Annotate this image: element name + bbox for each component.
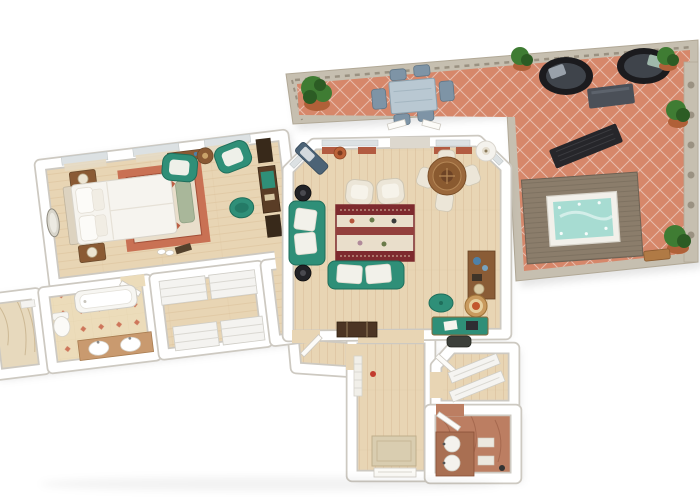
living-window bbox=[322, 140, 378, 146]
curtain bbox=[456, 147, 472, 154]
bookcase bbox=[256, 138, 274, 164]
nightstand bbox=[78, 243, 106, 263]
wardrobe-unit bbox=[220, 316, 265, 345]
sofa-cushion bbox=[294, 232, 317, 255]
papers bbox=[444, 320, 458, 331]
entry-hall bbox=[346, 338, 430, 477]
terrace-door-threshold bbox=[390, 137, 430, 148]
ornate-area-rug bbox=[336, 205, 414, 261]
garden-bench bbox=[644, 249, 671, 262]
orange-planter bbox=[334, 147, 346, 159]
cream-armchair bbox=[376, 178, 405, 206]
floor-plan-canvas bbox=[0, 0, 700, 500]
double-bed bbox=[63, 173, 178, 246]
teal-desk bbox=[432, 317, 488, 335]
closet-2 bbox=[430, 348, 514, 406]
outdoor-chair bbox=[413, 64, 430, 76]
teal-sofa-horizontal bbox=[328, 261, 404, 289]
towel-shelf bbox=[478, 438, 494, 447]
floor-plan-image bbox=[0, 0, 700, 500]
outdoor-chair bbox=[439, 80, 455, 101]
round-daybed bbox=[539, 57, 593, 95]
laptop bbox=[466, 321, 478, 330]
outdoor-chair bbox=[371, 88, 387, 109]
wardrobe-unit bbox=[173, 322, 220, 351]
teal-pouf bbox=[429, 294, 453, 312]
cream-armchair bbox=[345, 179, 374, 207]
wicker-chair bbox=[465, 295, 487, 317]
pillow bbox=[91, 189, 104, 211]
walk-in-closet bbox=[155, 266, 267, 354]
wall-shelf bbox=[20, 300, 35, 309]
sofa-cushion bbox=[365, 264, 391, 284]
sink bbox=[444, 455, 460, 471]
bookcase bbox=[265, 214, 283, 238]
sofa-cushion bbox=[336, 264, 362, 284]
outdoor-chair bbox=[390, 69, 407, 81]
bathroom-main bbox=[43, 274, 156, 368]
teal-armchair bbox=[161, 153, 198, 183]
black-side-table bbox=[295, 265, 311, 281]
hot-tub bbox=[521, 172, 643, 264]
living-room bbox=[288, 119, 506, 356]
side-hall bbox=[0, 293, 45, 374]
red-decor bbox=[370, 371, 376, 377]
curtain bbox=[358, 147, 376, 154]
stone-balustrade bbox=[684, 62, 698, 262]
storage-trunk bbox=[337, 322, 377, 337]
bath-accessory bbox=[499, 465, 505, 471]
wardrobe-unit bbox=[159, 276, 208, 305]
living-window bbox=[436, 140, 470, 146]
entry-door bbox=[374, 468, 416, 477]
radiator bbox=[354, 356, 362, 396]
sofa-cushion bbox=[294, 208, 318, 232]
pillow bbox=[95, 214, 108, 236]
sink bbox=[444, 436, 460, 452]
teal-sofa-vertical bbox=[289, 201, 325, 265]
doormat bbox=[372, 436, 416, 466]
ground-shadow bbox=[40, 477, 500, 491]
wood-console bbox=[468, 251, 495, 299]
bathroom-2 bbox=[430, 404, 516, 478]
desk-chair bbox=[447, 336, 471, 347]
bedroom-wing bbox=[0, 128, 327, 375]
outdoor-dining-table bbox=[389, 78, 438, 114]
closet2-opening bbox=[430, 372, 443, 398]
floor-lamp bbox=[476, 141, 496, 161]
wardrobe-unit bbox=[209, 270, 258, 299]
black-side-table bbox=[295, 185, 311, 201]
towel-shelf bbox=[478, 456, 494, 465]
